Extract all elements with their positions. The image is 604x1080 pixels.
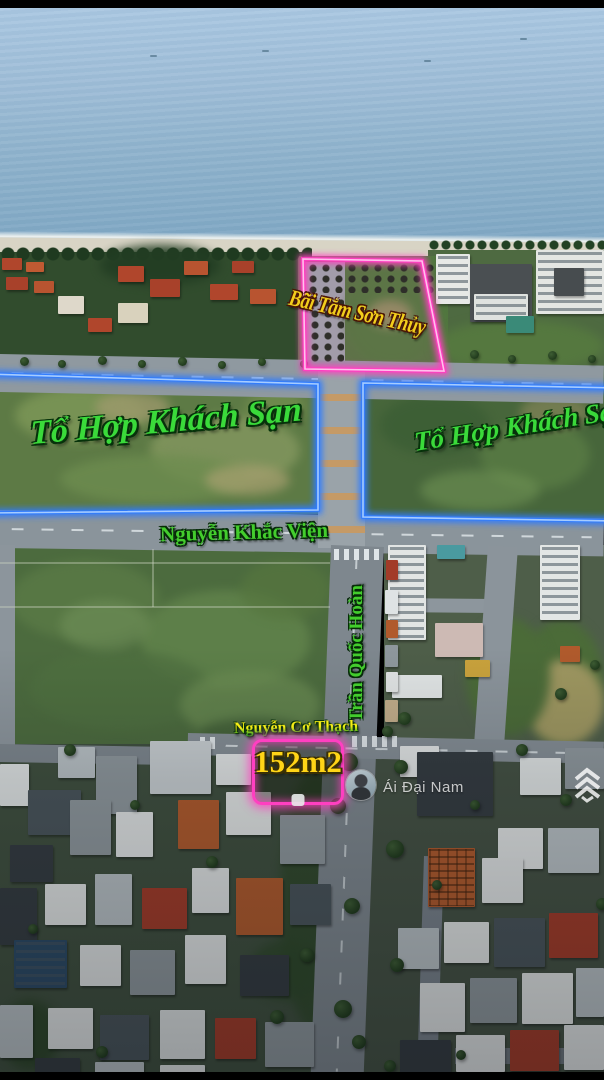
street-label-nguyen-khac-vien: Nguyễn Khắc Viện [160,519,329,545]
letterbox-bottom [0,1072,604,1080]
watermark-name: Ái Đại Nam [383,779,464,796]
chevron-stack-logo-icon [571,766,604,804]
street-label-tran-quoc-hoan: Trần Quốc Hoàn [347,585,367,722]
aerial-real-estate-frame: Bãi Tắm Sơn Thủy Tổ Hợp Khách Sạn Tổ Hợp… [0,0,604,1080]
watermark-avatar [346,770,376,800]
letterbox-top [0,0,604,8]
street-label-nguyen-co-thach: Nguyễn Cơ Thạch [234,719,358,738]
plot-area-label: 152m2 [254,744,342,780]
plot-highlight-152m2: 152m2 [252,739,344,805]
